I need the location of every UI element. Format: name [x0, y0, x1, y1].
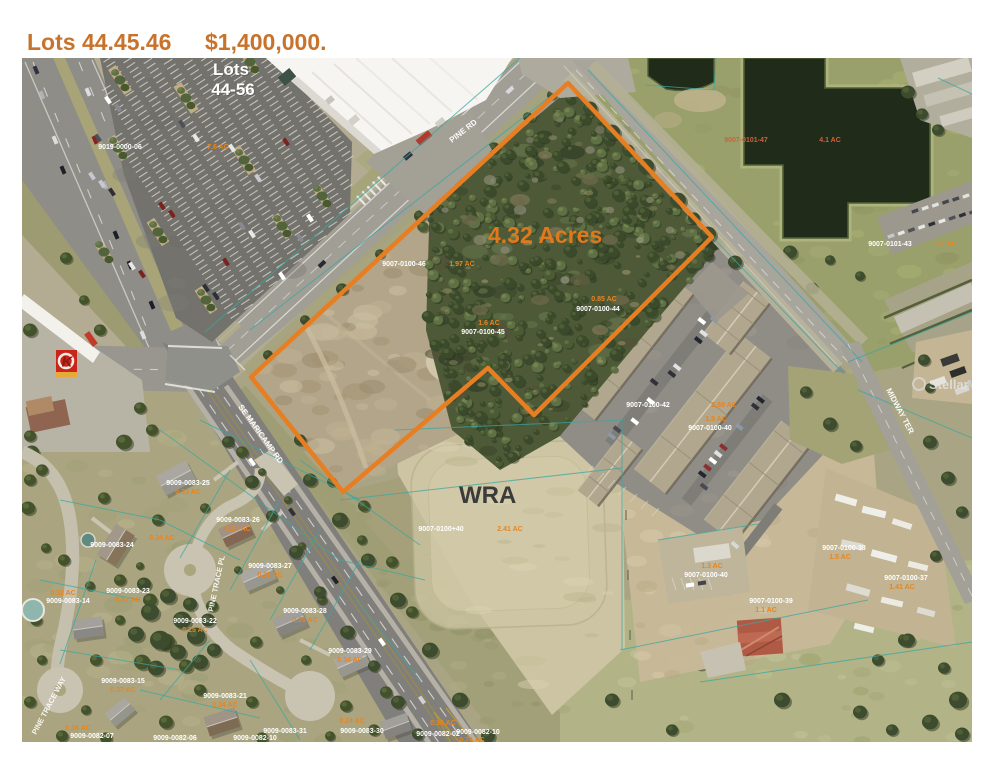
svg-text:0.25 AC: 0.25 AC [182, 627, 207, 634]
svg-text:9009-0082-06: 9009-0082-06 [153, 735, 197, 742]
svg-text:Lots 44.45.46: Lots 44.45.46 [27, 29, 171, 55]
svg-text:K: K [62, 354, 74, 371]
svg-text:9007-0100-46: 9007-0100-46 [382, 261, 426, 268]
svg-text:0.36 AC: 0.36 AC [430, 720, 455, 727]
svg-text:$1,400,000.: $1,400,000. [205, 29, 327, 55]
svg-text:9009-0082-07: 9009-0082-07 [70, 733, 114, 740]
svg-text:4.32 Acres: 4.32 Acres [488, 222, 602, 248]
svg-text:0.27 AC: 0.27 AC [115, 597, 140, 604]
svg-text:WRA: WRA [459, 482, 516, 509]
svg-text:9009-0083-24: 9009-0083-24 [90, 542, 134, 549]
svg-text:0.34 AC: 0.34 AC [339, 718, 364, 725]
svg-text:9007-0100+40: 9007-0100+40 [418, 526, 463, 533]
svg-text:0.37 AC: 0.37 AC [110, 687, 135, 694]
svg-text:0.34 AC: 0.34 AC [212, 702, 237, 709]
svg-text:1.97 AC: 1.97 AC [449, 261, 474, 268]
svg-text:9007-0100-42: 9007-0100-42 [626, 402, 670, 409]
svg-text:1.3 AC: 1.3 AC [701, 563, 723, 570]
svg-text:9009-0083-22: 9009-0083-22 [173, 618, 217, 625]
svg-text:7.6 AC: 7.6 AC [207, 144, 229, 151]
svg-text:2.41 AC: 2.41 AC [497, 526, 522, 533]
svg-text:1.6 AC: 1.6 AC [478, 320, 500, 327]
svg-text:0.33 AC: 0.33 AC [257, 572, 282, 579]
svg-text:9009-0082-10: 9009-0082-10 [456, 729, 500, 736]
svg-text:0.26 AC: 0.26 AC [292, 617, 317, 624]
svg-text:9007-0100-37: 9007-0100-37 [884, 575, 928, 582]
svg-text:Lots: Lots [213, 60, 249, 79]
svg-text:0.85 AC: 0.85 AC [591, 296, 616, 303]
svg-text:1.41 AC: 1.41 AC [889, 584, 914, 591]
svg-text:0.36 AC: 0.36 AC [65, 725, 90, 732]
svg-text:0.33 AC: 0.33 AC [175, 489, 200, 496]
svg-text:9007-0100-40: 9007-0100-40 [684, 572, 728, 579]
svg-text:9009-0082-10: 9009-0082-10 [233, 735, 277, 742]
svg-text:9009-0083-23: 9009-0083-23 [106, 588, 150, 595]
svg-text:Stellar: Stellar [929, 377, 969, 392]
svg-text:9009-0083-30: 9009-0083-30 [340, 728, 384, 735]
svg-text:9007-0100-45: 9007-0100-45 [461, 329, 505, 336]
svg-text:9009-0083-28: 9009-0083-28 [283, 608, 327, 615]
svg-text:9007-0100-44: 9007-0100-44 [576, 306, 620, 313]
svg-text:9007-0100-39: 9007-0100-39 [749, 598, 793, 605]
svg-text:9009-0083-31: 9009-0083-31 [263, 728, 307, 735]
svg-text:9007-0101-47: 9007-0101-47 [724, 137, 768, 144]
svg-text:9009-0083-15: 9009-0083-15 [101, 678, 145, 685]
svg-text:1.5 AC: 1.5 AC [705, 416, 727, 423]
svg-text:9009-0083-21: 9009-0083-21 [203, 693, 247, 700]
svg-text:0.32 AC: 0.32 AC [50, 590, 75, 597]
svg-text:0.34 AC: 0.34 AC [149, 535, 174, 542]
svg-text:9009-0083-14: 9009-0083-14 [46, 598, 90, 605]
svg-text:9007-0100-40: 9007-0100-40 [688, 425, 732, 432]
svg-text:44-56: 44-56 [211, 80, 254, 99]
svg-text:2.59 AC: 2.59 AC [711, 402, 736, 409]
svg-text:1.27 AC: 1.27 AC [931, 241, 956, 248]
svg-text:9009-0083-25: 9009-0083-25 [166, 480, 210, 487]
svg-text:0.34 AC: 0.34 AC [337, 657, 362, 664]
svg-text:9009-0082-02: 9009-0082-02 [416, 731, 460, 738]
svg-text:1.5 AC: 1.5 AC [829, 554, 851, 561]
svg-text:9019-0000-06: 9019-0000-06 [98, 144, 142, 151]
svg-text:9009-0083-27: 9009-0083-27 [248, 563, 292, 570]
svg-text:9007-0100-38: 9007-0100-38 [822, 545, 866, 552]
svg-text:9007-0101-43: 9007-0101-43 [868, 241, 912, 248]
svg-text:4.1 AC: 4.1 AC [819, 137, 841, 144]
svg-text:0.24 AC: 0.24 AC [225, 526, 250, 533]
svg-text:9009-0083-26: 9009-0083-26 [216, 517, 260, 524]
svg-text:1.1 AC: 1.1 AC [755, 607, 777, 614]
svg-text:9009-0083-29: 9009-0083-29 [328, 648, 372, 655]
